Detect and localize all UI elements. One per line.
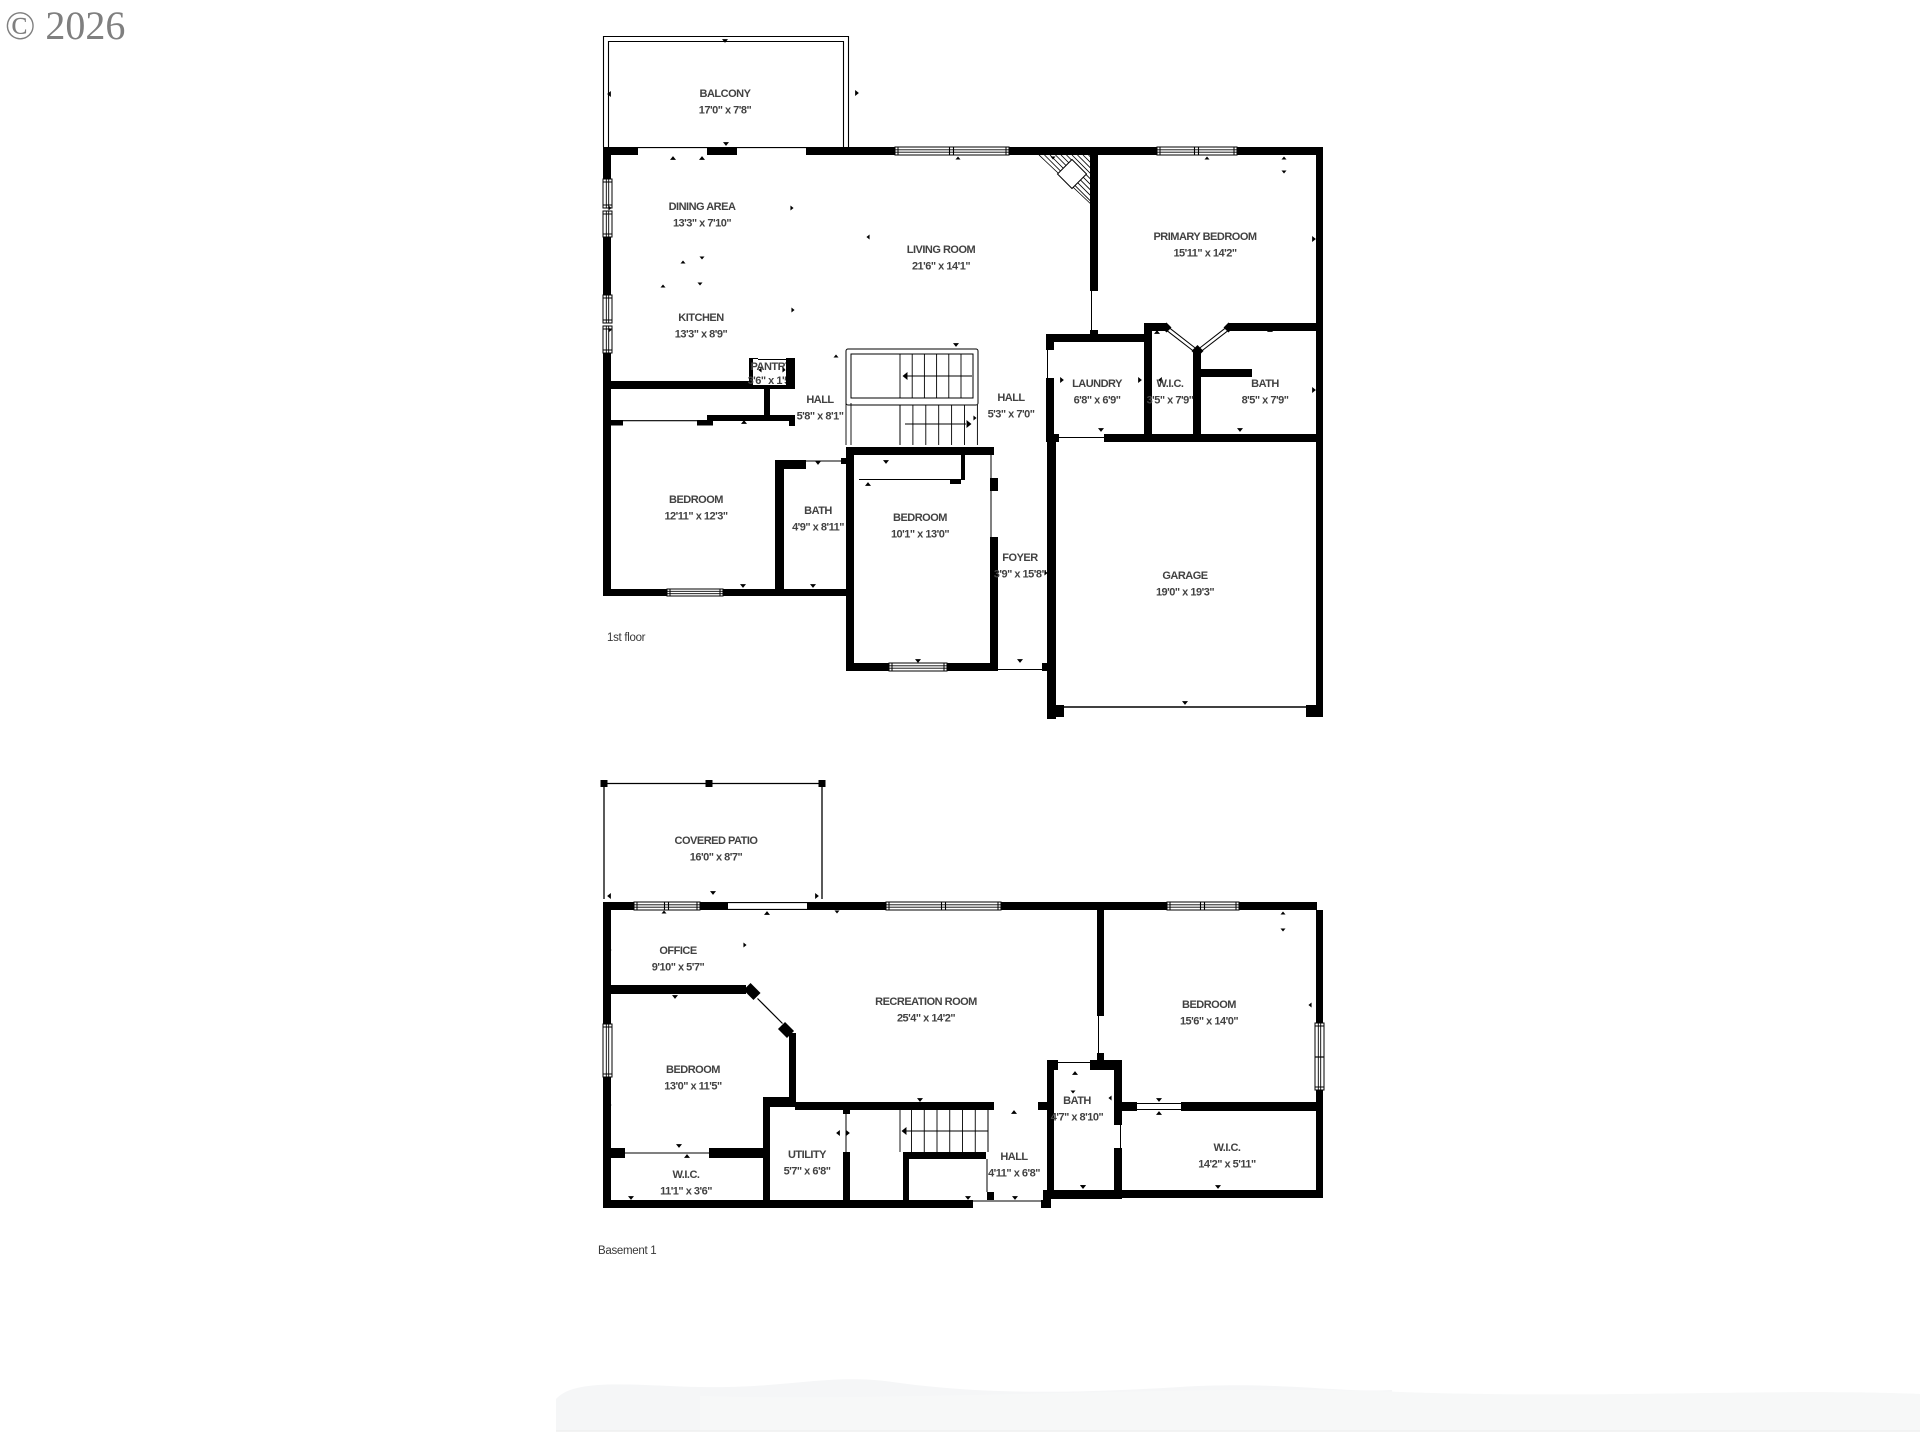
svg-text:KITCHEN: KITCHEN [678,312,724,324]
svg-text:9'10" x 5'7": 9'10" x 5'7" [652,962,705,974]
svg-text:25'4" x 14'2": 25'4" x 14'2" [897,1013,955,1025]
svg-text:5'8" x 8'1": 5'8" x 8'1" [797,411,844,423]
svg-text:BALCONY: BALCONY [700,88,752,100]
svg-text:BEDROOM: BEDROOM [893,512,947,524]
svg-text:HALL: HALL [806,394,834,406]
svg-text:COVERED PATIO: COVERED PATIO [675,835,759,847]
svg-text:W.I.C.: W.I.C. [1157,378,1184,390]
svg-text:10'1" x 13'0": 10'1" x 13'0" [891,529,949,541]
svg-text:GARAGE: GARAGE [1162,570,1207,582]
svg-text:RECREATION ROOM: RECREATION ROOM [875,996,977,1008]
svg-text:BEDROOM: BEDROOM [666,1064,720,1076]
svg-text:DINING AREA: DINING AREA [669,201,736,213]
svg-text:19'0" x 19'3": 19'0" x 19'3" [1156,587,1214,599]
svg-text:13'0" x 11'5": 13'0" x 11'5" [664,1081,722,1093]
svg-text:LAUNDRY: LAUNDRY [1072,378,1123,390]
svg-text:6'8" x 6'9": 6'8" x 6'9" [1074,395,1121,407]
svg-text:16'0" x 8'7": 16'0" x 8'7" [690,852,743,864]
svg-text:11'1" x 3'6": 11'1" x 3'6" [660,1186,712,1198]
svg-text:3'9" x 15'8": 3'9" x 15'8" [994,569,1047,581]
svg-text:17'0" x 7'8": 17'0" x 7'8" [699,105,752,117]
svg-text:OFFICE: OFFICE [659,945,696,957]
svg-text:5'3" x 7'0": 5'3" x 7'0" [988,409,1035,421]
svg-text:FOYER: FOYER [1002,552,1038,564]
svg-text:Basement 1: Basement 1 [598,1245,656,1257]
svg-text:4'7" x 8'10": 4'7" x 8'10" [1051,1112,1104,1124]
svg-text:BEDROOM: BEDROOM [669,494,723,506]
svg-text:12'11" x 12'3": 12'11" x 12'3" [664,511,727,523]
svg-text:21'6" x 14'1": 21'6" x 14'1" [912,261,970,273]
svg-text:BATH: BATH [1251,378,1279,390]
svg-text:3'5" x 7'9": 3'5" x 7'9" [1147,395,1194,407]
svg-text:BATH: BATH [804,505,832,517]
svg-text:15'11" x 14'2": 15'11" x 14'2" [1173,248,1236,260]
svg-text:4'9" x 8'11": 4'9" x 8'11" [792,522,844,534]
svg-text:HALL: HALL [997,392,1025,404]
svg-text:UTILITY: UTILITY [788,1149,827,1161]
svg-text:8'5" x 7'9": 8'5" x 7'9" [1242,395,1289,407]
svg-text:13'3" x 7'10": 13'3" x 7'10" [673,218,731,230]
svg-text:15'6" x 14'0": 15'6" x 14'0" [1180,1016,1238,1028]
svg-text:PRIMARY BEDROOM: PRIMARY BEDROOM [1153,231,1256,243]
svg-text:13'3" x 8'9": 13'3" x 8'9" [675,329,728,341]
svg-text:W.I.C.: W.I.C. [673,1169,700,1181]
svg-text:5'7" x 6'8": 5'7" x 6'8" [784,1166,831,1178]
svg-text:W.I.C.: W.I.C. [1214,1142,1241,1154]
svg-text:14'2" x 5'11": 14'2" x 5'11" [1198,1159,1256,1171]
svg-text:HALL: HALL [1000,1151,1028,1163]
svg-text:BEDROOM: BEDROOM [1182,999,1236,1011]
svg-text:LIVING ROOM: LIVING ROOM [907,244,976,256]
svg-text:4'11" x 6'8": 4'11" x 6'8" [988,1168,1040,1180]
svg-text:1st floor: 1st floor [607,632,646,644]
svg-text:BATH: BATH [1063,1095,1091,1107]
